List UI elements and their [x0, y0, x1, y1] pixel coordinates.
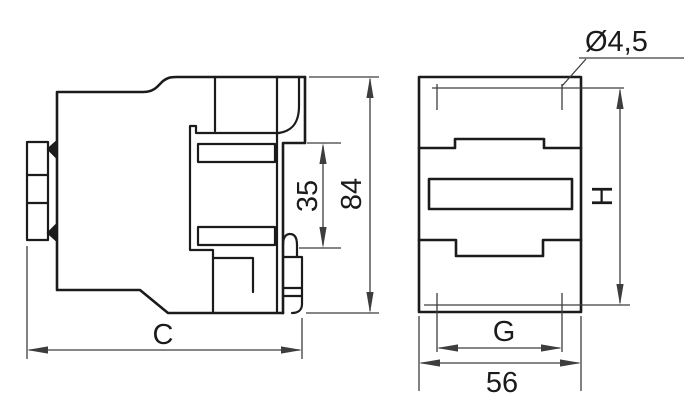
- clip-hook-bottom: [48, 224, 57, 241]
- dim-label-G: G: [493, 316, 516, 348]
- dimensions: [27, 58, 684, 391]
- arrowhead-56-right: [560, 359, 581, 366]
- side-view: [27, 77, 305, 313]
- arrowhead-35-up: [319, 143, 326, 164]
- dim-label-C: C: [153, 319, 174, 351]
- arrowhead-C-right: [281, 346, 302, 353]
- clip-hook-top: [48, 141, 57, 158]
- side-outline: [57, 77, 305, 313]
- dim-label-56: 56: [486, 367, 518, 399]
- arrowhead-G-right: [541, 344, 562, 351]
- front-top-notch: [419, 139, 581, 148]
- terminal-bar-bottom: [198, 227, 275, 245]
- arrowhead-56-left: [419, 359, 440, 366]
- side-rail-hook-bump: [283, 234, 297, 257]
- dim-label-35: 35: [292, 180, 324, 212]
- terminal-bar-top: [198, 144, 275, 162]
- arrowhead-G-left: [437, 344, 458, 351]
- arrowhead-C-left: [27, 346, 48, 353]
- side-cable-channel: [279, 77, 299, 133]
- arrowhead-35-down: [319, 227, 326, 248]
- front-center-slot: [429, 179, 572, 209]
- arrowhead-H-down: [616, 284, 623, 305]
- dim-label-H: H: [587, 186, 619, 207]
- front-bottom-notch: [419, 240, 581, 256]
- side-base-terminal: [283, 257, 302, 313]
- side-shelf-step: [190, 126, 279, 313]
- front-view: [419, 77, 581, 312]
- contactor-dimension-drawing: C 84 35 Ø4,5 H G 56: [0, 0, 684, 409]
- arrowhead-84-down: [366, 292, 373, 313]
- front-body: [419, 77, 581, 312]
- dim-label-hole-diameter: Ø4,5: [585, 26, 648, 58]
- arrowhead-H-up: [616, 88, 623, 109]
- dim-label-84: 84: [336, 178, 368, 210]
- din-clip-body: [27, 142, 48, 240]
- arrowhead-84-up: [366, 77, 373, 98]
- technical-drawing-page: C 84 35 Ø4,5 H G 56: [0, 0, 684, 409]
- dimension-labels: C 84 35 Ø4,5 H G 56: [153, 26, 648, 399]
- side-inner-corner: [213, 258, 253, 292]
